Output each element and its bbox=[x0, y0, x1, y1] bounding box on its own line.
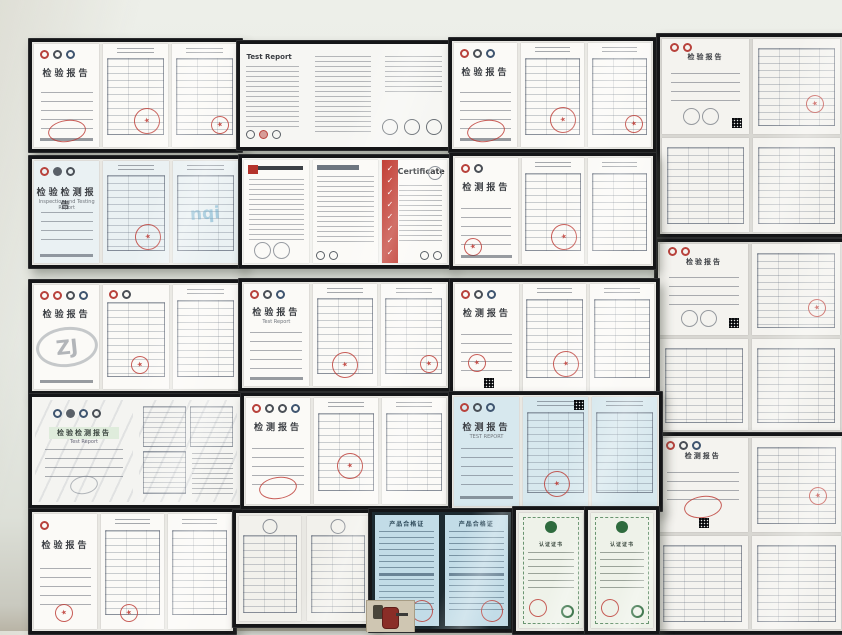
cert-logo-icon bbox=[291, 404, 300, 413]
zj-watermark: ZJ bbox=[34, 323, 100, 369]
certificate-frame-f3: 检验报告 bbox=[448, 37, 657, 153]
certification-logos bbox=[40, 49, 93, 59]
test-report-right-column bbox=[384, 49, 446, 142]
cert-logo-icon bbox=[79, 291, 88, 300]
report-title: 检验报告 bbox=[244, 305, 309, 318]
cert-logo-icon bbox=[53, 167, 62, 176]
cert-logo-icon bbox=[692, 441, 701, 450]
report-subtitle: Inspection and Testing Report bbox=[34, 199, 99, 211]
report-title: 检测报告 bbox=[246, 420, 310, 433]
check-marks: ✓✓✓✓✓✓✓✓ bbox=[386, 164, 395, 260]
cert-logo-icon bbox=[92, 409, 101, 418]
report-title: 检验检测报告 bbox=[49, 427, 120, 439]
report-subtitle: TEST REPORT bbox=[454, 434, 519, 440]
report-title: 检测报告 bbox=[454, 420, 519, 433]
cert-logo-icon bbox=[66, 167, 75, 176]
cert-logo-icon bbox=[474, 164, 483, 173]
certificate-frame-f7: 检验报告 ZJ bbox=[28, 279, 244, 395]
report-subtitle: Test Report bbox=[35, 439, 133, 445]
cert-logo-icon bbox=[486, 403, 495, 412]
certificate-frame-f11: 检测报告 bbox=[240, 392, 452, 510]
certificate-title: 产品合格证 bbox=[375, 519, 439, 528]
test-report-left-column: Test Report bbox=[244, 49, 306, 142]
ccc-logo-icon bbox=[40, 521, 49, 530]
report-title: 检验报告 bbox=[34, 538, 97, 551]
report-title: 检验报告 bbox=[34, 66, 99, 79]
certificate-title: 产品合格证 bbox=[445, 519, 509, 528]
certificate-frame-f17: 认证证书 bbox=[584, 506, 660, 635]
qr-code-icon bbox=[699, 518, 709, 528]
cert-logo-icon bbox=[474, 290, 483, 299]
ccc-logo-icon bbox=[40, 291, 49, 300]
certificate-wall-photo: { "icons": { "star": "★", "check": "✓" }… bbox=[0, 0, 842, 631]
cert-logo-icon bbox=[66, 291, 75, 300]
certificate-frame-f14 bbox=[232, 509, 376, 628]
cert-mark-icon bbox=[272, 130, 281, 139]
certificate-frame-r1: 检验报告 bbox=[656, 33, 842, 238]
cert-logo-icon bbox=[79, 409, 88, 418]
cert-logo-icon bbox=[53, 409, 62, 418]
certificate-title: 认证证书 bbox=[591, 541, 653, 548]
certificate-frame-f4: 检验检测报告 Inspection and Testing Report nqi bbox=[28, 155, 244, 269]
round-stamp-icon bbox=[263, 519, 278, 534]
cert-logo-icon bbox=[683, 43, 692, 52]
report-title: 检测报告 bbox=[658, 451, 748, 461]
cert-logo-icon bbox=[66, 409, 75, 418]
cert-logo-icon bbox=[265, 404, 274, 413]
stamp-icon bbox=[404, 119, 420, 135]
cert-mark-icon bbox=[246, 130, 255, 139]
red-check-stripe: ✓✓✓✓✓✓✓✓ bbox=[382, 160, 398, 263]
certificate-frame-f12: 检测报告 TEST REPORT bbox=[448, 391, 663, 512]
red-plug bbox=[382, 607, 399, 629]
round-logo-icon bbox=[428, 166, 442, 180]
report-title: Test Report bbox=[246, 53, 291, 61]
certificate-frame-f1: 检验报告 bbox=[28, 38, 243, 153]
hfb-logo-icon bbox=[248, 165, 258, 174]
ccc-logo-icon bbox=[461, 290, 470, 299]
report-title: 检测报告 bbox=[455, 306, 519, 319]
cert-logo-icon bbox=[276, 290, 285, 299]
cert-mark-icon bbox=[259, 130, 268, 139]
certificate-page-right: ✓✓✓✓✓✓✓✓ Certificate bbox=[382, 160, 447, 263]
cert-logo-icon bbox=[66, 50, 75, 59]
report-subtitle: Test Report bbox=[244, 319, 309, 325]
cert-logo-icon bbox=[487, 290, 496, 299]
cert-logo-icon bbox=[668, 247, 677, 256]
ccc-logo-icon bbox=[40, 50, 49, 59]
qr-code-icon bbox=[732, 118, 742, 128]
plug-cord bbox=[396, 613, 408, 616]
power-outlet bbox=[366, 600, 415, 632]
certificate-frame-f6: 检测报告 bbox=[449, 152, 657, 270]
qr-code-icon bbox=[574, 400, 584, 410]
cert-logo-icon bbox=[486, 49, 495, 58]
certificate-frame-f2: Test Report bbox=[236, 40, 454, 151]
ccc-logo-icon bbox=[666, 441, 675, 450]
green-seal-icon bbox=[561, 605, 574, 618]
test-report-mid-column bbox=[314, 49, 376, 142]
report-cover-page: 检验报告 bbox=[34, 44, 99, 147]
certificate-frame-r3: 检测报告 bbox=[652, 432, 842, 635]
green-emblem-icon bbox=[616, 521, 628, 533]
certificate-page-mid bbox=[313, 160, 378, 263]
cert-logo-icon bbox=[109, 290, 118, 299]
certificate-frame-f9: 检测报告 bbox=[449, 278, 660, 397]
round-stamps bbox=[382, 119, 442, 135]
ccc-logo-icon bbox=[252, 404, 261, 413]
cert-logo-icon bbox=[278, 404, 287, 413]
stamp-icon bbox=[426, 119, 442, 135]
report-title: 检验报告 bbox=[660, 257, 748, 267]
certificate-frame-f13: 检验报告 bbox=[28, 508, 237, 635]
report-table-page bbox=[172, 44, 237, 147]
ccc-logo-icon bbox=[670, 43, 679, 52]
certificate-frame-f16: 认证证书 bbox=[512, 506, 590, 635]
cert-logo-icon bbox=[53, 50, 62, 59]
report-title: 检验报告 bbox=[454, 65, 517, 78]
report-table-page bbox=[103, 44, 168, 147]
certification-marks bbox=[246, 130, 281, 139]
round-stamps bbox=[683, 108, 719, 125]
ccc-logo-icon bbox=[460, 403, 469, 412]
green-seal-icon bbox=[631, 605, 644, 618]
cert-logo-icon bbox=[40, 167, 49, 176]
report-title: 检验报告 bbox=[662, 52, 749, 62]
certificate-frame-f10: 检验检测报告 Test Report bbox=[28, 393, 244, 509]
ccc-logo-icon bbox=[250, 290, 259, 299]
cert-logo-icon bbox=[263, 290, 272, 299]
cert-logo-icon bbox=[473, 49, 482, 58]
ccc-logo-icon bbox=[461, 164, 470, 173]
ccc-logo-icon bbox=[460, 49, 469, 58]
report-cover-page: 检验报告 bbox=[662, 39, 749, 134]
qr-code-icon bbox=[484, 378, 494, 388]
qr-code-icon bbox=[729, 318, 739, 328]
cert-logo-icon bbox=[122, 290, 131, 299]
round-stamp-icon bbox=[331, 519, 346, 534]
cert-logo-icon bbox=[53, 291, 62, 300]
certificate-frame-f5: ✓✓✓✓✓✓✓✓ Certificate bbox=[238, 154, 453, 269]
report-title: 检验报告 bbox=[34, 307, 99, 320]
cert-logo-icon bbox=[679, 441, 688, 450]
cert-logo-icon bbox=[681, 247, 690, 256]
certificate-title: 认证证书 bbox=[519, 541, 583, 548]
certificate-frame-r2: 检验报告 bbox=[654, 238, 842, 436]
certificate-page-left bbox=[244, 160, 309, 263]
stamp-icon bbox=[382, 119, 398, 135]
report-title: 检测报告 bbox=[455, 180, 518, 193]
cert-logo-icon bbox=[473, 403, 482, 412]
certificate-frame-f8: 检验报告 Test Report bbox=[238, 278, 452, 392]
green-emblem-icon bbox=[545, 521, 557, 533]
